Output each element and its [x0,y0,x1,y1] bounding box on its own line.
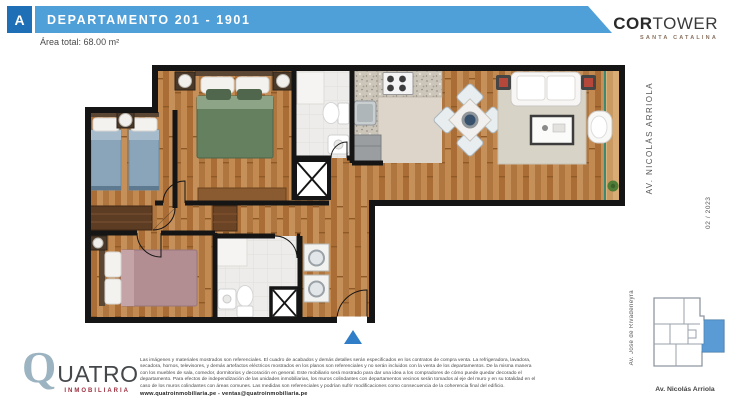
armchair-icon [588,111,612,143]
area-value: 68.00 m² [84,37,120,47]
washer-icon [304,244,329,271]
project-name: CORTOWER [613,15,718,34]
logo-rest: UATRO [57,361,138,388]
nightstand-left-icon [175,72,195,90]
twin-bed-right-icon [129,118,159,190]
street-label-left: Av. José de Rivadeneyra [629,290,635,382]
unit-letter: A [14,12,24,28]
flyer-page: A DEPARTAMENTO 201 - 1901 Área total: 68… [0,0,730,410]
toilet-icon [323,103,349,125]
hall-dresser-icon [213,206,237,231]
stove-icon [383,73,413,95]
street-label-right: AV. NICOLÁS ARRIOLA [645,72,654,204]
area-total: Área total: 68.00 m² [40,37,119,47]
sink-2-icon [218,289,236,309]
area-label: Área total: [40,37,81,47]
dryer-icon [304,275,329,302]
project-name-bold: COR [613,14,652,33]
shaft-2-icon [271,288,298,318]
side-table-left-icon [496,75,511,90]
bench-icon [198,188,286,202]
side-table-right-icon [581,75,596,90]
project-subtitle: SANTA CATALINA [613,35,718,41]
shared-nightstand-icon [117,112,134,128]
entrance-triangle-icon [344,330,362,344]
toilet-2-icon [237,286,253,318]
key-map [642,292,728,384]
twin-bed-left-icon [91,118,121,190]
project-name-light: TOWER [653,14,718,33]
kitchen-sink-icon [354,101,376,125]
key-map-drawing [642,292,728,384]
floor-plan-drawing [85,58,630,350]
contact-line: www.quatroinmobiliaria.pe - ventas@quatr… [140,391,536,397]
logo-q: Q [22,350,56,385]
legal-disclaimer: Las imágenes y materiales mostrados son … [140,358,536,390]
kitchen [352,71,442,163]
bathroom-1 [295,71,352,158]
street-label-bottom: Av. Nicolás Arriola [640,386,730,393]
sofa-icon [511,72,581,106]
unit-letter-badge: A [7,6,32,33]
title-bar: DEPARTAMENTO 201 - 1901 [35,6,612,33]
fridge-icon [353,135,381,163]
agency-logo: QUATRO INMOBILIARIA [22,350,132,394]
shaft-1-icon [295,160,329,198]
project-logo: CORTOWER SANTA CATALINA [613,15,718,41]
nightstand-right-icon [273,72,293,90]
page-title: DEPARTAMENTO 201 - 1901 [47,13,251,27]
date-label: 02 / 2023 [705,183,712,229]
key-map-highlighted-unit [702,320,724,352]
coffee-table-icon [531,116,573,144]
wardrobe-icon [90,206,152,230]
nightstand-3-icon [89,236,107,250]
floor-plan [85,58,630,355]
